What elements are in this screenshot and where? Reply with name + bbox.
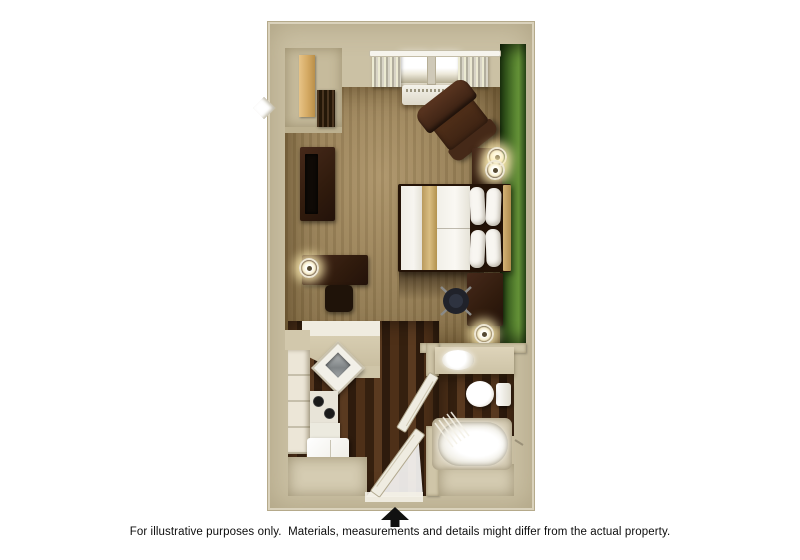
headboard [503,185,511,271]
bed-runner [422,186,437,270]
burner-icon [324,408,335,419]
curtain-rod [369,50,501,57]
pillow [485,188,501,227]
work-desk [467,273,503,326]
curtain-left-icon [372,52,401,87]
bathtub-icon [438,422,508,466]
north-arrow-icon [381,507,409,527]
window-mullion [427,53,436,85]
floor-plan [268,22,534,510]
desk-lamp-icon [299,258,319,278]
desk-stool [325,285,353,312]
flat-screen-tv-icon [305,154,318,214]
toilet-tank [496,383,511,406]
breakfast-counter-top [302,321,380,336]
toilet-icon [466,381,494,407]
pillow [469,230,486,269]
burner-icon [313,396,324,407]
closet-alcove [285,48,342,133]
kitchen-counter [285,330,310,350]
queen-bed [398,184,511,272]
pillow [469,187,486,226]
disclaimer-caption: For illustrative purposes only. Material… [0,526,800,538]
table-lamp-icon [485,160,505,180]
window-pane [433,53,460,83]
hanging-clothes-icon [317,90,335,127]
stove-icon [310,391,338,423]
vanity-sink-icon [442,350,474,370]
floorplan-canvas: For illustrative purposes only. Material… [0,0,800,560]
wardrobe-closet-icon [299,55,315,117]
pillow [485,229,501,268]
kitchen-entry-floor [288,457,367,496]
towel-hook-icon [515,440,523,445]
bed-duvet [401,186,422,270]
window-pane [400,53,430,83]
work-desk-lamp-icon [474,324,494,344]
bed-duvet [437,186,470,270]
